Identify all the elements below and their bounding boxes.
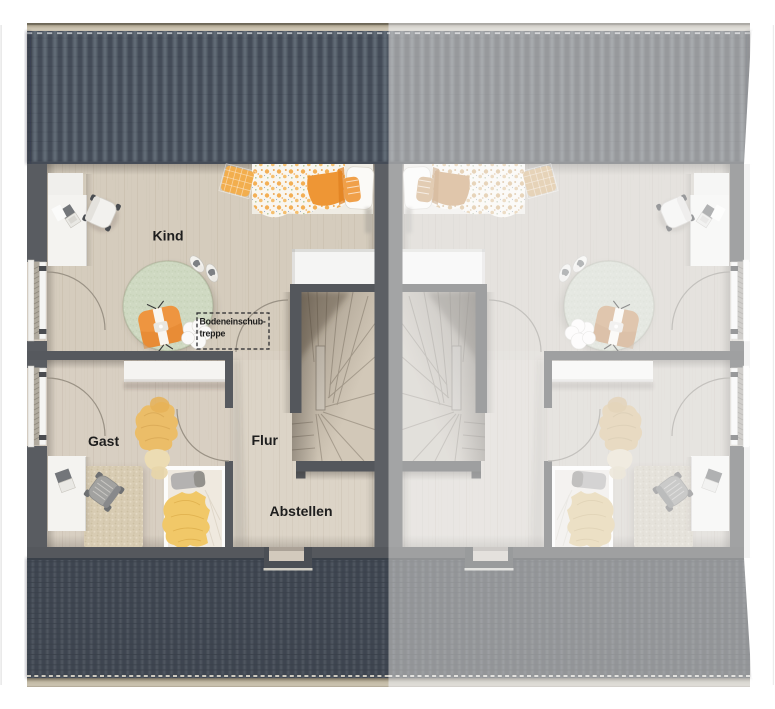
svg-text:Kind: Kind (153, 228, 184, 244)
svg-text:Bodeneinschub-: Bodeneinschub- (200, 317, 266, 327)
svg-text:Gast: Gast (88, 433, 119, 449)
svg-text:Flur: Flur (252, 432, 279, 448)
svg-text:treppe: treppe (200, 329, 226, 339)
svg-text:Abstellen: Abstellen (270, 503, 333, 519)
